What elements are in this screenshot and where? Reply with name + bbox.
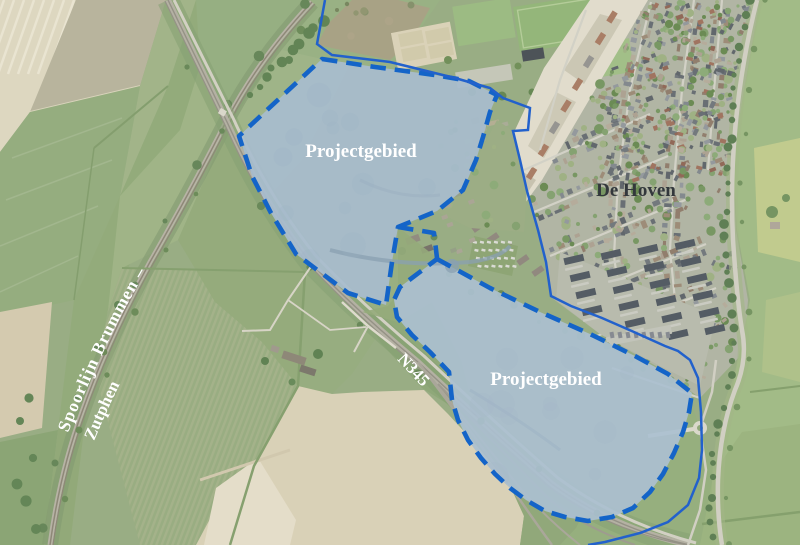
svg-text:De Hoven: De Hoven (596, 180, 676, 201)
svg-text:Projectgebied: Projectgebied (305, 141, 417, 162)
svg-text:Projectgebied: Projectgebied (490, 369, 602, 390)
